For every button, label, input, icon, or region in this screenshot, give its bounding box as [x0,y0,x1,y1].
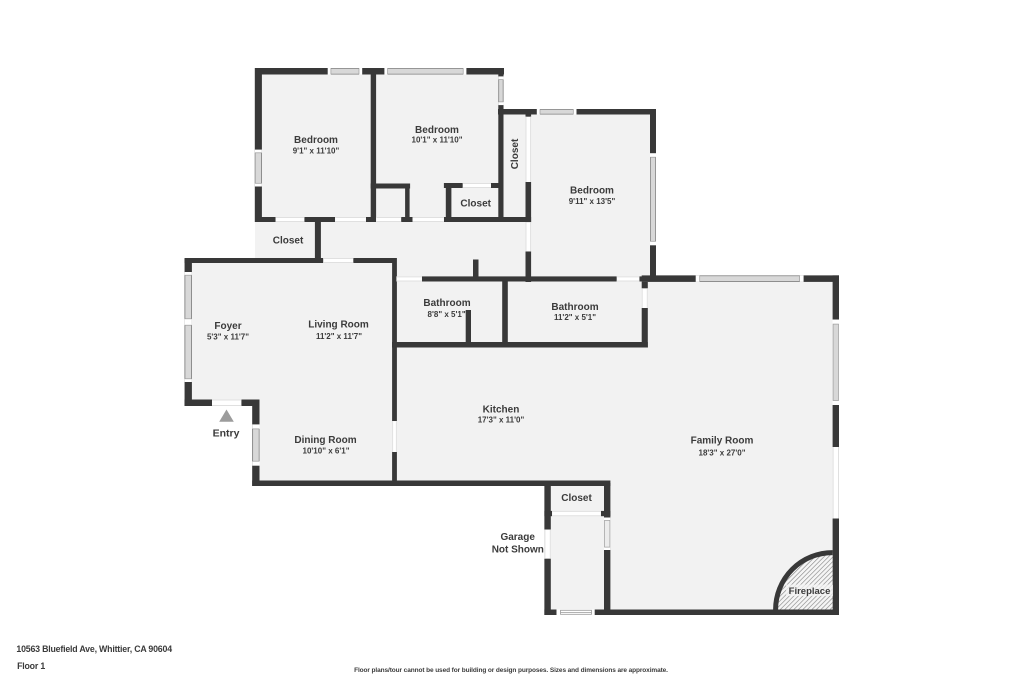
svg-text:Entry: Entry [213,427,240,439]
svg-text:Closet: Closet [460,199,491,210]
svg-text:10563 Bluefield Ave, Whittier,: 10563 Bluefield Ave, Whittier, CA 90604 [16,644,172,654]
svg-text:Closet: Closet [561,493,592,504]
svg-text:Garage: Garage [500,532,535,543]
svg-text:Family Room: Family Room [691,436,754,447]
svg-text:10'1" x 11'10": 10'1" x 11'10" [412,135,463,144]
svg-text:Not Shown: Not Shown [492,545,544,556]
svg-text:Bathroom: Bathroom [423,298,470,309]
svg-text:Bathroom: Bathroom [551,302,598,313]
svg-text:17'3" x 11'0": 17'3" x 11'0" [478,416,525,425]
svg-text:Bedroom: Bedroom [570,186,614,197]
svg-text:Fireplace: Fireplace [789,586,831,597]
svg-text:9'11" x 13'5": 9'11" x 13'5" [569,197,616,206]
svg-text:8'8" x 5'1": 8'8" x 5'1" [428,310,466,319]
svg-text:10'10" x 6'1": 10'10" x 6'1" [303,446,350,455]
svg-text:18'3" x 27'0": 18'3" x 27'0" [699,448,746,457]
svg-text:Bedroom: Bedroom [294,135,338,146]
svg-text:11'2" x 11'7": 11'2" x 11'7" [316,332,362,341]
svg-text:Foyer: Foyer [214,321,241,332]
svg-text:9'1" x 11'10": 9'1" x 11'10" [293,146,340,155]
svg-text:Floor 1: Floor 1 [17,661,45,671]
svg-text:Closet: Closet [510,138,521,169]
svg-text:11'2" x 5'1": 11'2" x 5'1" [554,313,596,322]
svg-text:Kitchen: Kitchen [483,405,520,416]
svg-text:Dining Room: Dining Room [294,435,356,446]
svg-text:Closet: Closet [273,236,304,247]
svg-text:Floor plans/tour cannot be use: Floor plans/tour cannot be used for buil… [354,667,668,674]
svg-text:Living Room: Living Room [308,320,369,331]
svg-text:5'3" x 11'7": 5'3" x 11'7" [207,332,249,341]
